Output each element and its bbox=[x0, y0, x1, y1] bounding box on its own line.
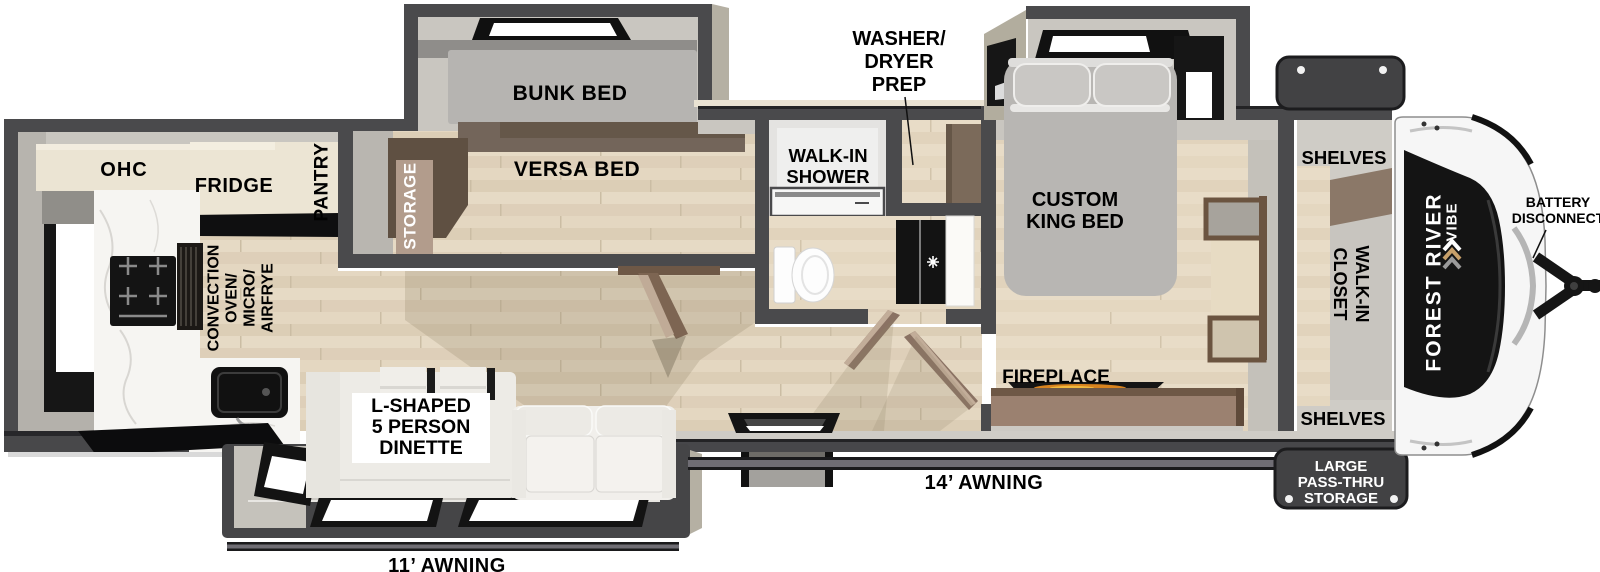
svg-text:STORAGE: STORAGE bbox=[1304, 490, 1378, 507]
svg-text:CUSTOM: CUSTOM bbox=[1032, 189, 1118, 211]
svg-text:CONVECTION: CONVECTION bbox=[206, 245, 223, 352]
svg-text:SHELVES: SHELVES bbox=[1302, 147, 1387, 168]
svg-text:DRYER: DRYER bbox=[864, 51, 934, 73]
svg-text:OHC: OHC bbox=[100, 159, 147, 181]
svg-text:WALK-IN: WALK-IN bbox=[788, 145, 867, 166]
svg-text:VIBE: VIBE bbox=[1444, 202, 1461, 241]
svg-text:PASS-THRU: PASS-THRU bbox=[1298, 474, 1384, 491]
svg-text:BATTERY: BATTERY bbox=[1526, 194, 1591, 210]
svg-text:AIRFRYE: AIRFRYE bbox=[260, 263, 277, 333]
svg-text:KING BED: KING BED bbox=[1026, 211, 1124, 233]
svg-text:DISCONNECT: DISCONNECT bbox=[1512, 210, 1600, 226]
svg-text:WASHER/: WASHER/ bbox=[852, 28, 946, 50]
svg-text:FOREST RIVER: FOREST RIVER bbox=[1423, 192, 1446, 371]
svg-text:SHELVES: SHELVES bbox=[1301, 408, 1386, 429]
svg-text:SHOWER: SHOWER bbox=[786, 166, 869, 187]
svg-text:PREP: PREP bbox=[872, 74, 926, 96]
svg-text:CLOSET: CLOSET bbox=[1330, 247, 1350, 320]
svg-text:OVEN/: OVEN/ bbox=[224, 273, 241, 323]
svg-text:PANTRY: PANTRY bbox=[312, 143, 333, 222]
svg-text:WALK-IN: WALK-IN bbox=[1352, 246, 1372, 323]
svg-text:VERSA BED: VERSA BED bbox=[514, 158, 640, 181]
svg-text:DINETTE: DINETTE bbox=[379, 437, 462, 459]
svg-text:11’ AWNING: 11’ AWNING bbox=[388, 555, 506, 572]
svg-text:L-SHAPED: L-SHAPED bbox=[371, 395, 471, 417]
svg-text:5 PERSON: 5 PERSON bbox=[372, 416, 471, 438]
svg-text:FIREPLACE: FIREPLACE bbox=[1002, 367, 1110, 388]
svg-text:STORAGE: STORAGE bbox=[401, 162, 420, 249]
svg-text:FRIDGE: FRIDGE bbox=[195, 175, 274, 197]
svg-text:14’ AWNING: 14’ AWNING bbox=[925, 472, 1044, 494]
svg-text:MICRO/: MICRO/ bbox=[242, 269, 259, 327]
svg-text:BUNK BED: BUNK BED bbox=[513, 82, 628, 105]
svg-text:LARGE: LARGE bbox=[1315, 458, 1368, 475]
